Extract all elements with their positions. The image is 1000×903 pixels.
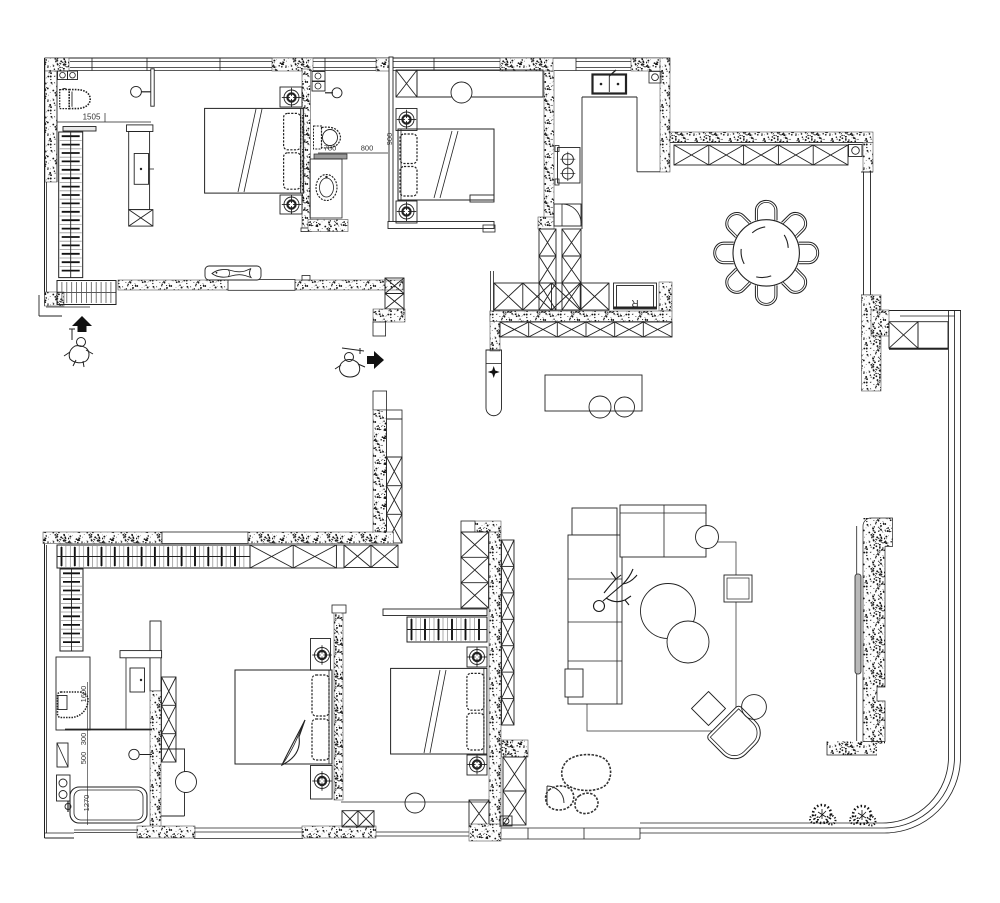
svg-text:800: 800 xyxy=(361,144,374,153)
svg-text:R: R xyxy=(631,297,638,308)
svg-text:1600: 1600 xyxy=(79,686,88,703)
svg-text:300: 300 xyxy=(79,733,88,746)
svg-text:500: 500 xyxy=(79,752,88,765)
svg-text:900: 900 xyxy=(385,133,394,146)
svg-text:780: 780 xyxy=(324,144,337,153)
svg-text:1270: 1270 xyxy=(82,795,91,812)
svg-text:1505: 1505 xyxy=(83,113,101,122)
